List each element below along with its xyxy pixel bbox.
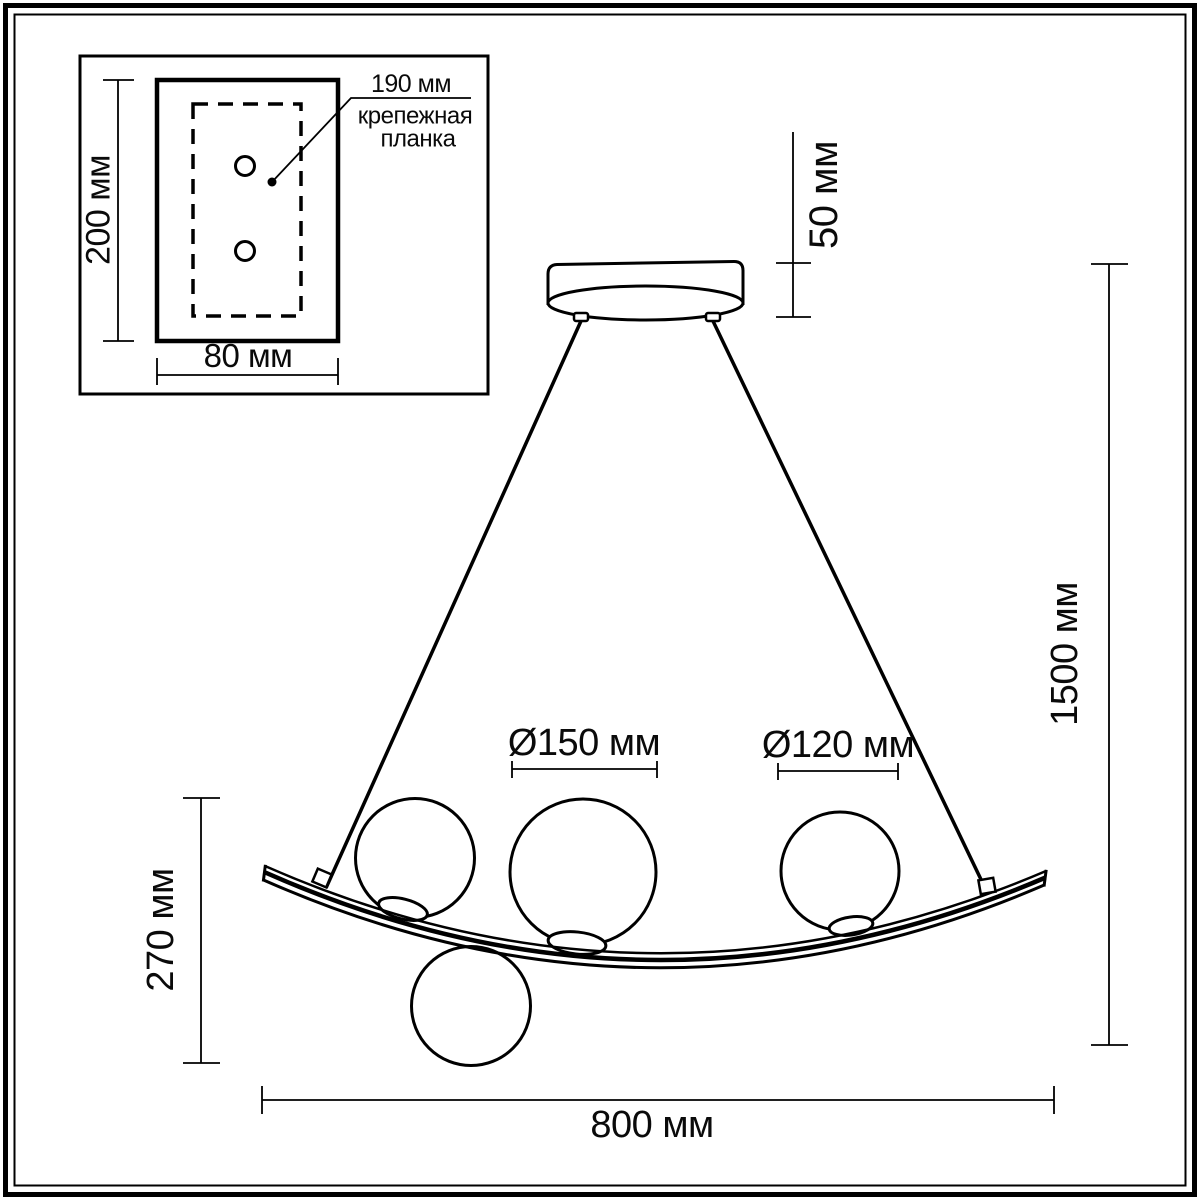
label-canopy-height: 50 мм <box>804 141 846 249</box>
dim-body-height <box>183 798 220 1063</box>
wire-fitting-right <box>706 313 720 321</box>
rail-end-left <box>263 865 265 882</box>
mounting-plate <box>157 80 338 341</box>
dimensional-drawing-page: 190 мм крепежная планка 200 мм 80 мм 50 … <box>0 0 1200 1200</box>
dim-overall-height <box>1091 264 1128 1045</box>
label-body-height: 270 мм <box>142 868 182 991</box>
label-globe-small-diameter: Ø120 мм <box>762 726 914 766</box>
mounting-hole-bottom <box>236 242 255 261</box>
wire-fitting-left <box>574 313 588 321</box>
rail-connector-right <box>978 878 995 894</box>
label-bar-length: 190 мм <box>371 71 451 97</box>
suspension-wire-right <box>713 321 987 892</box>
label-overall-height: 1500 мм <box>1046 582 1086 726</box>
page-frame <box>6 6 1195 1195</box>
globe-center-large <box>510 799 656 945</box>
globe-right <box>781 812 899 930</box>
suspension-wire-left <box>326 321 581 888</box>
line-art <box>0 0 1200 1200</box>
label-body-width: 800 мм <box>590 1106 713 1146</box>
label-plate-width: 80 мм <box>204 339 293 373</box>
mounting-bar-dashed <box>193 104 301 316</box>
ceiling-canopy <box>548 262 743 322</box>
globe-bottom <box>412 947 531 1066</box>
mounting-hole-top <box>236 157 255 176</box>
label-bar-name-line2: планка <box>381 128 456 153</box>
label-globe-large-diameter: Ø150 мм <box>508 724 660 764</box>
globe-left <box>356 799 475 918</box>
label-plate-height: 200 мм <box>81 155 116 265</box>
